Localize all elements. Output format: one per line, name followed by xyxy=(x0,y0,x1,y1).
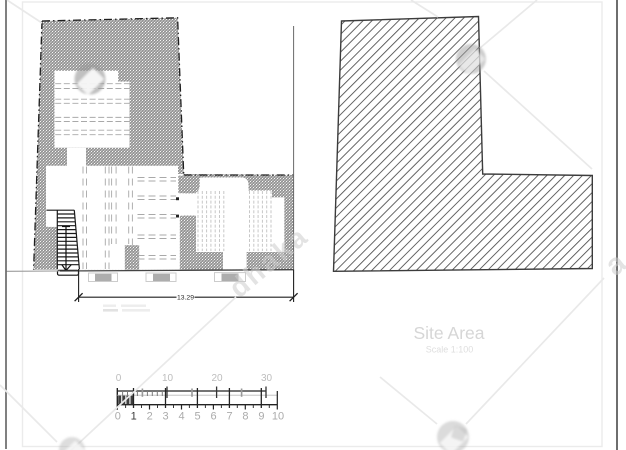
svg-text:6: 6 xyxy=(210,411,216,423)
svg-text:Site Area: Site Area xyxy=(413,323,484,343)
svg-text:1: 1 xyxy=(131,411,137,423)
svg-text:3: 3 xyxy=(163,411,169,423)
svg-text:Scale 1:100: Scale 1:100 xyxy=(426,345,474,355)
svg-text:7: 7 xyxy=(226,411,232,423)
svg-text:2: 2 xyxy=(147,411,153,423)
svg-text:4: 4 xyxy=(179,411,185,423)
svg-text:5: 5 xyxy=(195,411,201,423)
svg-text:20: 20 xyxy=(211,373,223,384)
svg-text:10: 10 xyxy=(272,411,284,423)
svg-text:0: 0 xyxy=(116,373,122,384)
svg-text:9: 9 xyxy=(258,411,264,423)
svg-text:0: 0 xyxy=(115,411,121,423)
svg-text:13.29: 13.29 xyxy=(177,295,194,302)
svg-text:10: 10 xyxy=(162,373,174,384)
svg-text:30: 30 xyxy=(261,373,273,384)
svg-text:8: 8 xyxy=(242,411,248,423)
